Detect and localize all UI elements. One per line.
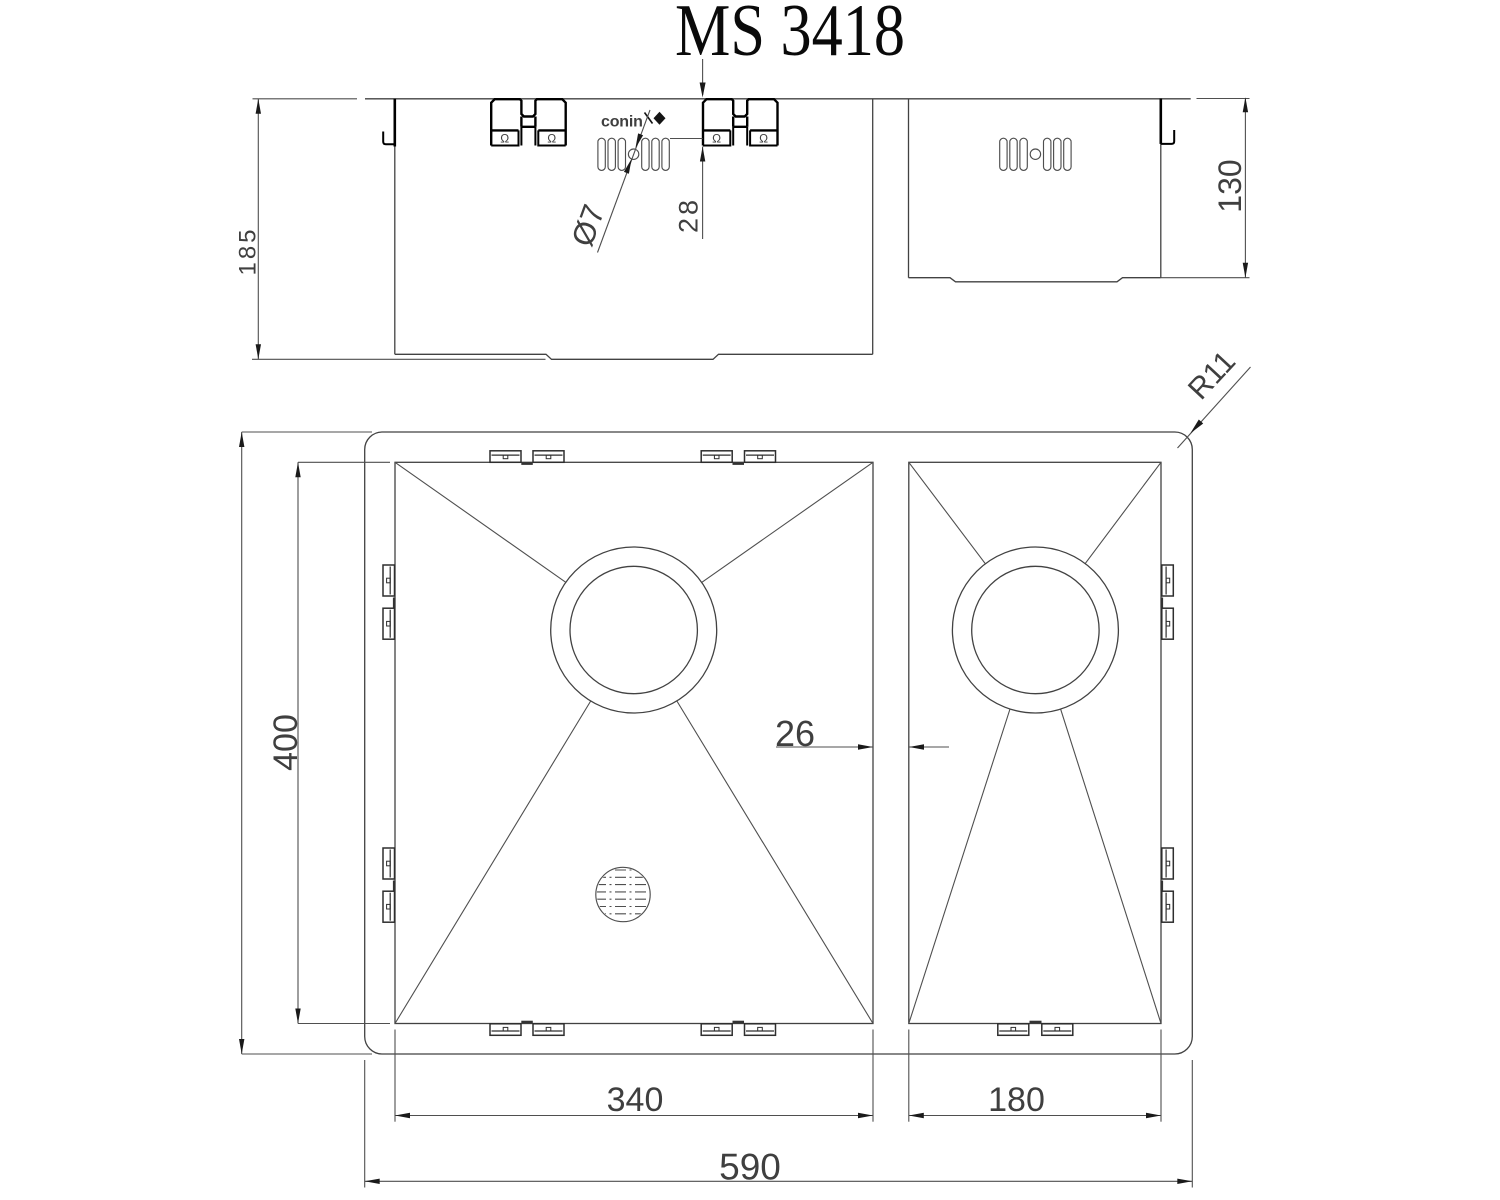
- svg-text:400: 400: [267, 714, 305, 771]
- svg-text:conin: conin: [601, 114, 643, 131]
- svg-text:185: 185: [234, 226, 261, 275]
- svg-text:26: 26: [775, 713, 815, 754]
- svg-text:MS 3418: MS 3418: [675, 0, 905, 72]
- svg-text:28: 28: [674, 197, 704, 233]
- svg-text:590: 590: [719, 1147, 781, 1188]
- svg-text:180: 180: [988, 1081, 1045, 1119]
- svg-text:130: 130: [1212, 159, 1248, 212]
- svg-text:340: 340: [607, 1081, 664, 1119]
